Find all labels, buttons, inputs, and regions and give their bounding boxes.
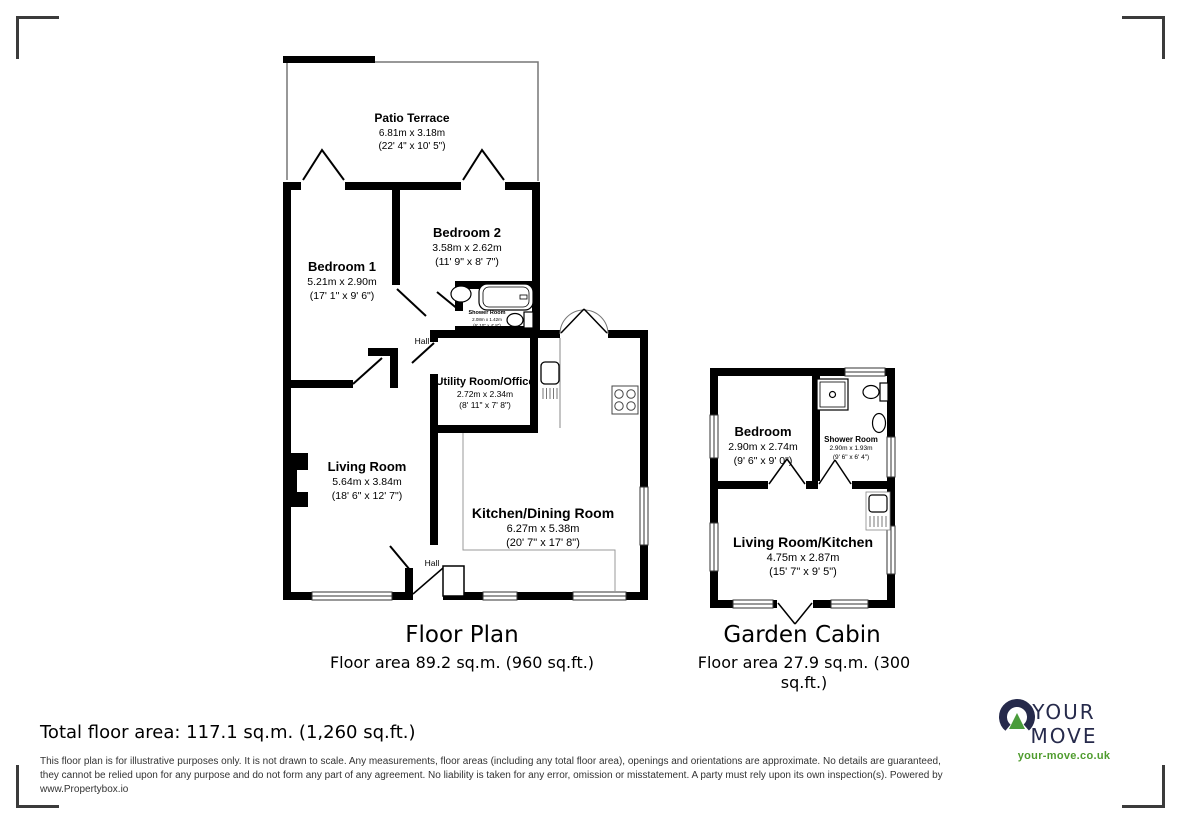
sink-icon [541, 362, 559, 384]
room-label-cabin-living-kitchen: Living Room/Kitchen 4.75m x 2.87m (15' 7… [733, 533, 873, 580]
main-plan-title: Floor Plan [405, 622, 518, 648]
toilet-icon [507, 312, 533, 328]
shower-tray-icon [817, 379, 848, 410]
bath-icon [479, 284, 533, 310]
your-move-logo: YOUR MOVE your-move.co.uk [995, 698, 1133, 762]
room-label-living-room: Living Room 5.64m x 3.84m (18' 6" x 12' … [328, 459, 407, 503]
floorplan-page: Patio Terrace 6.81m x 3.18m (22' 4" x 10… [0, 0, 1181, 826]
room-label-cabin-shower: Shower Room 2.90m x 1.93m (9' 6" x 6' 4"… [824, 435, 878, 462]
room-label-cabin-bedroom: Bedroom 2.90m x 2.74m (9' 6" x 9' 0") [728, 424, 797, 468]
total-floor-area: Total floor area: 117.1 sq.m. (1,260 sq.… [40, 722, 416, 743]
room-label-bedroom-2: Bedroom 2 3.58m x 2.62m (11' 9" x 8' 7") [432, 225, 501, 269]
basin-icon [451, 286, 471, 302]
room-label-kitchen-dining: Kitchen/Dining Room 6.27m x 5.38m (20' 7… [472, 504, 614, 551]
cabin-sink-icon [866, 492, 890, 530]
main-plan-area: Floor area 89.2 sq.m. (960 sq.ft.) [330, 653, 594, 673]
drainer-icon [543, 388, 557, 399]
patio-door-triangles [303, 150, 504, 180]
cabin-plan-title: Garden Cabin [723, 622, 880, 648]
room-label-shower-room: Shower Room 2.08m x 1.42m (6' 10" x 4' 8… [469, 310, 506, 329]
room-label-bedroom-1: Bedroom 1 5.21m x 2.90m (17' 1" x 9' 6") [307, 259, 376, 303]
room-label-utility-room: Utility Room/Office 2.72m x 2.34m (8' 11… [435, 375, 534, 411]
room-label-hall-upper: Hall [415, 336, 430, 346]
cabin-toilet-icon [863, 383, 888, 401]
cabin-basin-icon [873, 414, 886, 433]
room-label-hall-lower: Hall [425, 558, 440, 568]
hob-icon [612, 386, 638, 414]
disclaimer-text: This floor plan is for illustrative purp… [40, 755, 958, 796]
logo-url-text: your-move.co.uk [995, 750, 1133, 762]
cabin-plan-area: Floor area 27.9 sq.m. (300 sq.ft.) [690, 653, 918, 693]
room-label-patio-terrace: Patio Terrace 6.81m x 3.18m (22' 4" x 10… [374, 111, 449, 153]
entrance-door-leaf [443, 566, 464, 596]
logo-symbol [995, 698, 1039, 738]
logo-triangle-icon [1009, 713, 1025, 729]
